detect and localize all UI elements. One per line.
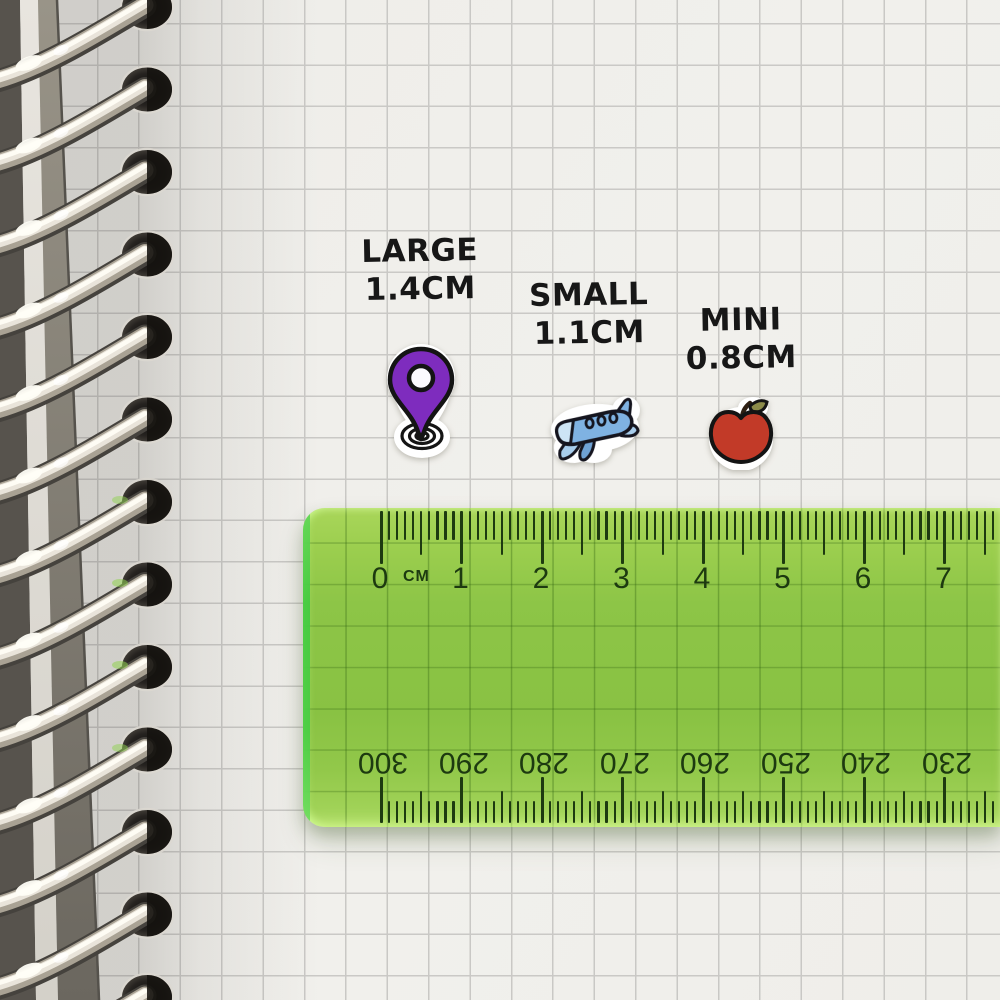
ruler-mm-number: 300 — [358, 745, 408, 779]
ruler-unit-label: CM — [403, 568, 430, 586]
ruler: 0 CM 1 2 3 4 5 6 7 300 290 280 270 260 2… — [303, 508, 1000, 827]
size-label-large: LARGE 1.4CM — [337, 231, 502, 310]
ruler-ticks-bottom — [303, 508, 1000, 827]
ruler-cm-number: 5 — [774, 562, 791, 596]
ruler-cm-number: 0 — [372, 562, 389, 596]
ruler-cm-number: 7 — [935, 562, 952, 596]
ruler-cm-number: 4 — [694, 562, 711, 596]
ruler-cm-number: 3 — [613, 562, 630, 596]
ruler-cm-number: 1 — [452, 562, 469, 596]
size-label-value: 1.4CM — [338, 269, 503, 310]
ruler-mm-number: 250 — [760, 745, 810, 779]
size-label-value: 1.1CM — [507, 313, 672, 354]
size-label-title: MINI — [658, 300, 823, 341]
size-label-title: LARGE — [337, 231, 502, 272]
ruler-mm-number: 260 — [680, 745, 730, 779]
size-label-mini: MINI 0.8CM — [658, 300, 823, 379]
size-label-small: SMALL 1.1CM — [506, 275, 671, 354]
ruler-mm-number: 290 — [438, 745, 488, 779]
size-label-value: 0.8CM — [659, 338, 824, 379]
ruler-mm-number: 280 — [519, 745, 569, 779]
airplane-sticker — [543, 393, 645, 468]
ruler-mm-number: 230 — [921, 745, 971, 779]
size-label-title: SMALL — [506, 275, 671, 316]
location-pin-sticker — [383, 342, 461, 464]
spiral-binding — [0, 0, 210, 1000]
ruler-cm-number: 6 — [855, 562, 872, 596]
ruler-cm-number: 2 — [533, 562, 550, 596]
ruler-mm-number: 240 — [841, 745, 891, 779]
apple-sticker — [702, 396, 780, 470]
ruler-mm-number: 270 — [599, 745, 649, 779]
notebook-photo: LARGE 1.4CM SMALL 1.1CM MINI 0.8CM — [0, 0, 1000, 1000]
